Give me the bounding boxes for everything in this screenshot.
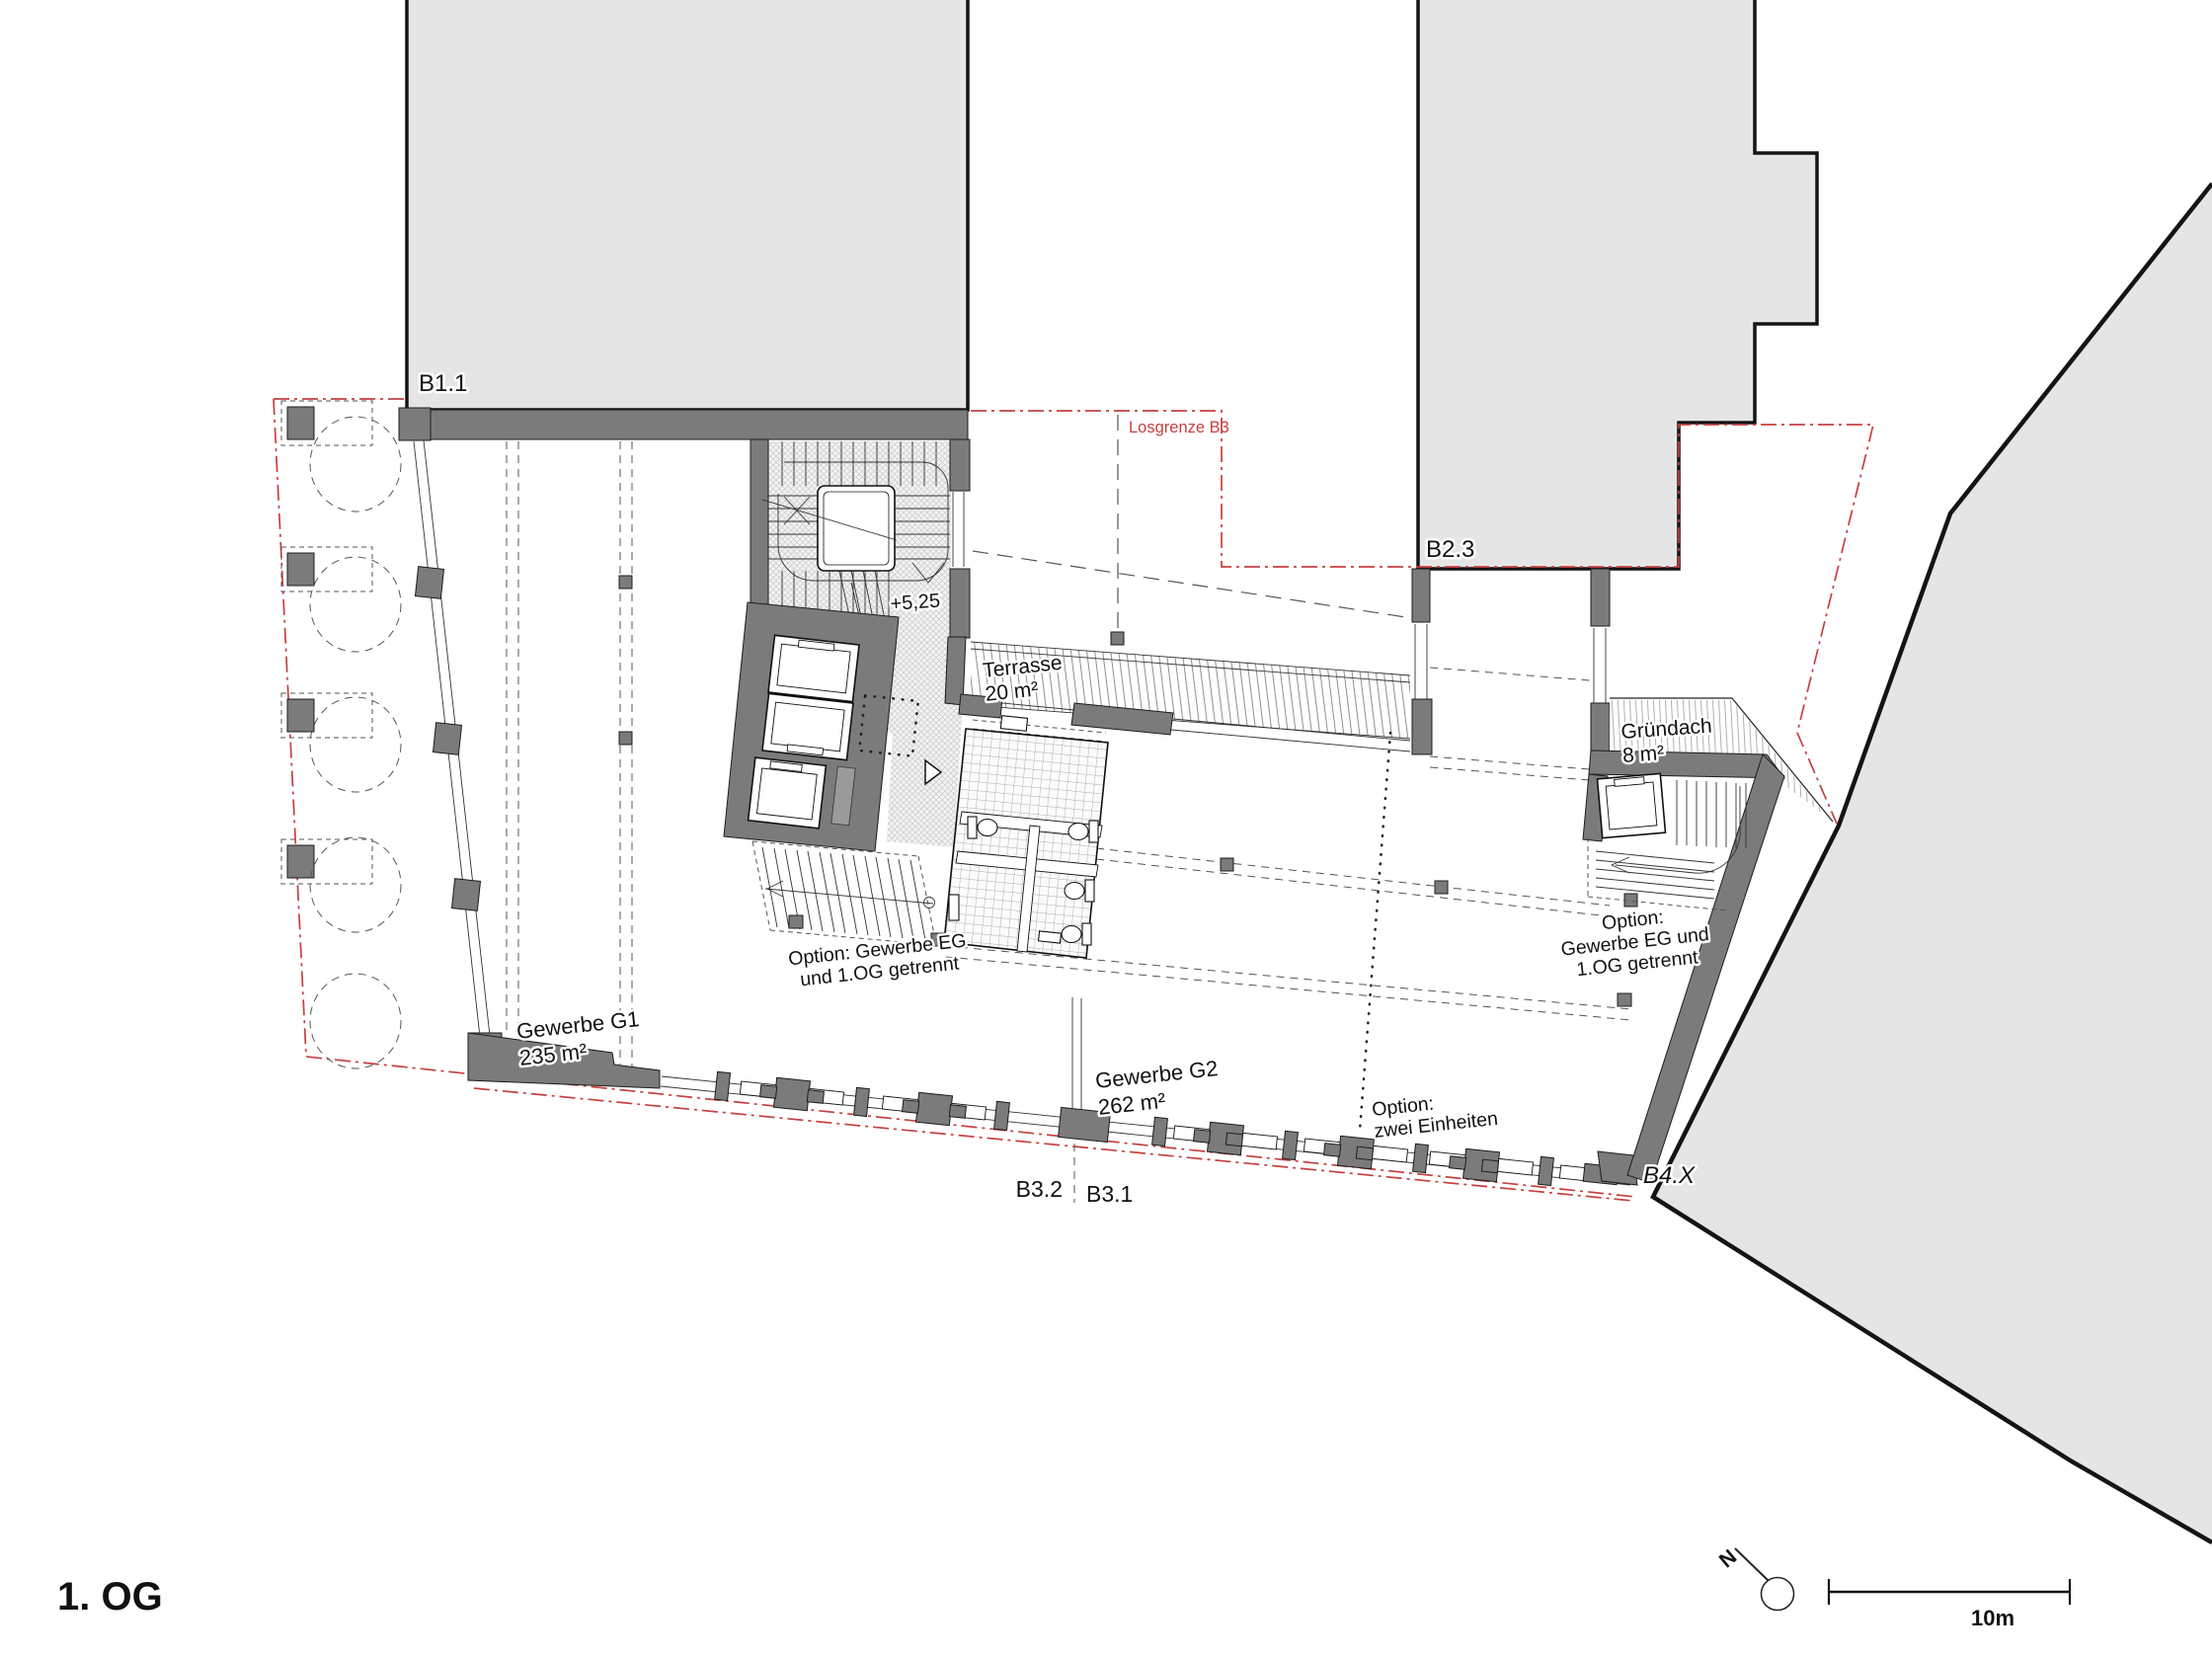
section-marker-b32: B3.2 [1016, 1176, 1063, 1202]
building-b4x-label: B4.X [1643, 1162, 1696, 1189]
scale-label: 10m [1971, 1606, 2014, 1630]
building-b11: B1.1 [407, 0, 968, 410]
floor-plan-drawing: B1.1 B2.3 Losgrenze B3 [0, 0, 2212, 1659]
losgrenze-label: Losgrenze B3 [1129, 419, 1229, 436]
floor-plan-page: B1.1 B2.3 Losgrenze B3 [0, 0, 2212, 1659]
building-b23-label: B2.3 [1426, 536, 1474, 563]
wc-block [944, 716, 1108, 958]
level-marker: +5,25 [890, 591, 941, 615]
gruendach-area: 8 m² [1621, 742, 1665, 767]
building-b11-label: B1.1 [419, 370, 467, 397]
elevator-block [724, 602, 899, 851]
north-wall [399, 408, 968, 440]
floor-title: 1. OG [57, 1575, 163, 1619]
section-marker-b31: B3.1 [1086, 1181, 1133, 1207]
